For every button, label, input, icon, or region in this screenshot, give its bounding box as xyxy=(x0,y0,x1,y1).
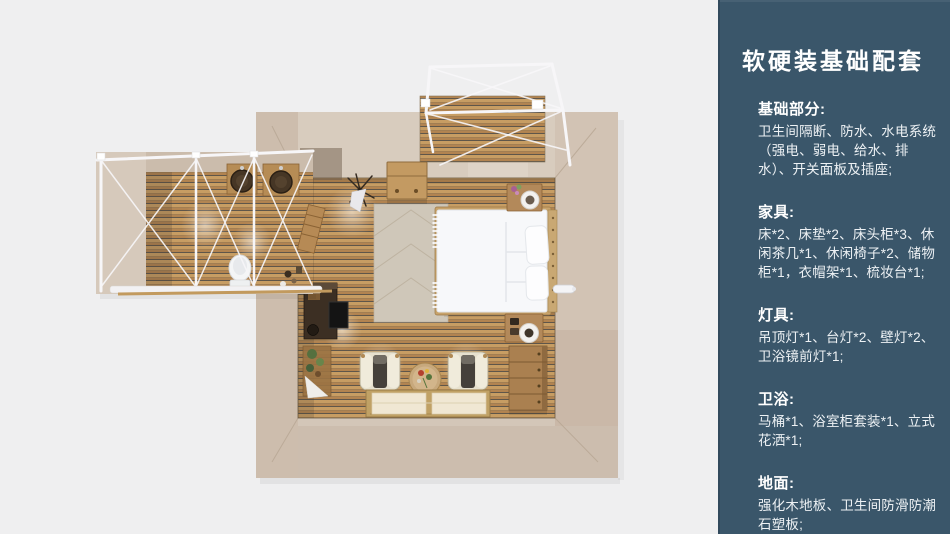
double-bed xyxy=(435,207,557,317)
bathroom-vanity xyxy=(227,164,299,196)
pillow xyxy=(525,266,548,301)
faucet xyxy=(279,166,283,170)
storage-box xyxy=(387,162,427,204)
floor-mats xyxy=(366,390,490,417)
plant xyxy=(316,358,324,366)
table-flowers xyxy=(417,379,421,383)
sidebar-title: 软硬装基础配套 xyxy=(742,42,938,76)
table-flowers xyxy=(425,369,429,373)
bathroom-floor-shade xyxy=(146,172,172,292)
section-basics: 基础部分: 卫生间隔断、防水、水电系统（强电、弱电、给水、排水）、开关面板及插座… xyxy=(758,98,938,179)
plant xyxy=(306,364,314,372)
headboard xyxy=(548,210,557,312)
package-sidebar: 软硬装基础配套 基础部分: 卫生间隔断、防水、水电系统（强电、弱电、给水、排水）… xyxy=(718,0,950,534)
kettle xyxy=(308,325,319,336)
section-lighting-heading: 灯具: xyxy=(758,304,938,325)
section-furniture-body: 床*2、床垫*2、床头柜*3、休闲茶几*1、休闲椅子*2、储物柜*1，衣帽架*1… xyxy=(758,225,938,282)
section-flooring-body: 强化木地板、卫生间防滑防潮石塑板; xyxy=(758,496,938,534)
table-flowers xyxy=(418,370,424,376)
flower-vase xyxy=(517,185,522,190)
table-flowers xyxy=(426,374,432,380)
floorplan-svg xyxy=(0,0,718,534)
wall-lamp xyxy=(553,285,576,293)
armchair-left xyxy=(360,352,400,390)
section-bathroom-heading: 卫浴: xyxy=(758,388,938,409)
section-flooring-heading: 地面: xyxy=(758,472,938,493)
section-bathroom-body: 马桶*1、浴室柜套装*1、立式花洒*1; xyxy=(758,412,938,450)
plant-pot xyxy=(315,371,321,377)
frame-joint xyxy=(192,152,200,158)
section-bathroom: 卫浴: 马桶*1、浴室柜套装*1、立式花洒*1; xyxy=(758,388,938,450)
plant xyxy=(307,349,317,359)
nightstand-bottom xyxy=(505,314,543,343)
floorplan-render xyxy=(0,0,718,534)
armchair-right xyxy=(448,352,488,390)
section-furniture-heading: 家具: xyxy=(758,201,938,222)
room-shadow-right xyxy=(618,120,624,480)
pillow xyxy=(525,225,550,264)
canopy-joint xyxy=(421,99,430,107)
canopy-joint xyxy=(532,100,543,109)
table-lamp xyxy=(526,196,535,205)
nightstand-top xyxy=(507,184,542,211)
section-flooring: 地面: 强化木地板、卫生间防滑防潮石塑板; xyxy=(758,472,938,534)
flower-vase xyxy=(515,191,519,195)
flower-vase xyxy=(511,186,517,192)
section-basics-heading: 基础部分: xyxy=(758,98,938,119)
bathroom-light-glow xyxy=(181,201,229,249)
frame-joint xyxy=(97,153,105,160)
section-lighting-body: 吊顶灯*1、台灯*2、壁灯*2、卫浴镜前灯*1; xyxy=(758,328,938,366)
faucet xyxy=(240,166,244,170)
plant-shelf xyxy=(303,346,331,398)
wall-bottom xyxy=(256,426,618,478)
section-furniture: 家具: 床*2、床垫*2、床头柜*3、休闲茶几*1、休闲椅子*2、储物柜*1，衣… xyxy=(758,201,938,282)
room-shadow-bottom xyxy=(260,478,620,484)
annex-wall-left xyxy=(96,152,146,294)
slide: 软硬装基础配套 基础部分: 卫生间隔断、防水、水电系统（强电、弱电、给水、排水）… xyxy=(0,0,950,534)
sidebar-sections: 基础部分: 卫生间隔断、防水、水电系统（强电、弱电、给水、排水）、开关面板及插座… xyxy=(742,98,938,534)
section-basics-body: 卫生间隔断、防水、水电系统（强电、弱电、给水、排水）、开关面板及插座; xyxy=(758,122,938,179)
table-lamp xyxy=(525,329,534,338)
frame-joint xyxy=(250,151,258,157)
tv xyxy=(329,302,348,328)
chest-of-drawers xyxy=(509,346,547,415)
section-lighting: 灯具: 吊顶灯*1、台灯*2、壁灯*2、卫浴镜前灯*1; xyxy=(758,304,938,366)
